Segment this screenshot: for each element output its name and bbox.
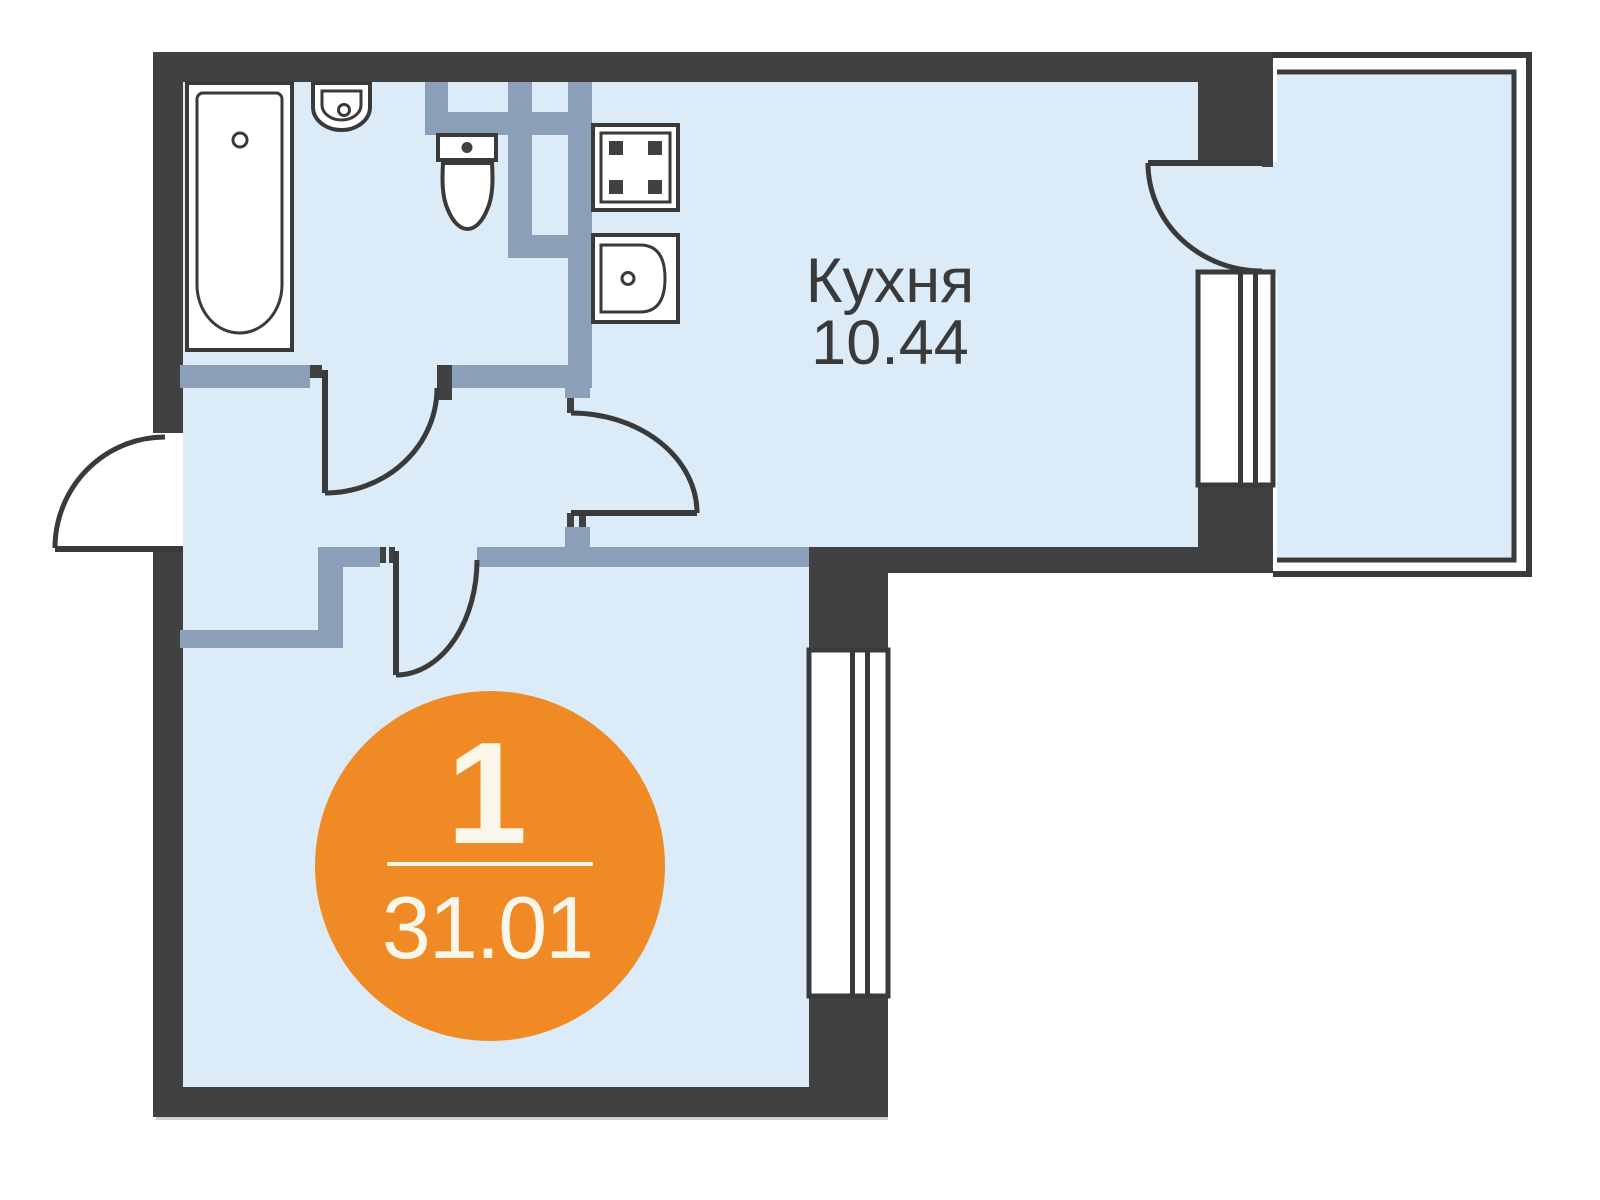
jamb-bathroom-left xyxy=(310,365,322,378)
stove-outline xyxy=(593,125,678,210)
unit-badge: 1 31.01 xyxy=(315,691,665,1041)
floor-plan-svg: Кухня 10.44 1 31.01 xyxy=(0,0,1600,1200)
wall-top xyxy=(153,52,1273,82)
wall-balcony-pillar-lower xyxy=(1198,485,1273,573)
partition-duct-d xyxy=(508,235,592,258)
partition-hall-bottom xyxy=(180,630,343,648)
wall-balcony-pillar-upper xyxy=(1198,52,1273,162)
wall-bottom xyxy=(153,1087,888,1117)
washbasin-icon xyxy=(313,83,370,130)
unit-badge-area: 31.01 xyxy=(382,878,592,977)
partition-duct-c xyxy=(508,82,532,258)
partition-bathroom-bottom-right xyxy=(452,365,568,388)
partition-duct-b xyxy=(425,112,568,135)
partition-kitchen-door-bottom xyxy=(565,527,590,547)
stove-burner-tr xyxy=(648,141,662,155)
jamb-living-left-a xyxy=(380,547,386,563)
unit-badge-rooms: 1 xyxy=(447,712,528,874)
kitchen-label: Кухня xyxy=(806,246,975,316)
stove-icon xyxy=(593,125,678,210)
partition-bathroom-bottom-left xyxy=(180,365,310,388)
jamb-balcony-door xyxy=(1262,158,1273,167)
stove-burner-br xyxy=(648,180,662,194)
partition-kitchen-door-top xyxy=(565,388,590,398)
wall-left-lower xyxy=(153,552,183,1117)
jamb-entrance xyxy=(167,552,182,572)
labels: Кухня 10.44 xyxy=(806,246,975,378)
kitchen-area-label: 10.44 xyxy=(811,308,969,378)
wall-left-upper xyxy=(153,52,183,433)
living-room-window xyxy=(809,650,888,996)
partition-living-top-right xyxy=(477,547,809,567)
toilet-button xyxy=(462,142,473,153)
floor-balcony xyxy=(1277,75,1512,557)
kitchen-window xyxy=(1198,272,1273,485)
floor-plan: Кухня 10.44 1 31.01 xyxy=(0,0,1600,1200)
stove-burner-tl xyxy=(609,141,623,155)
bathtub-icon xyxy=(187,83,292,350)
wall-living-right-lower xyxy=(809,998,888,1117)
kitchen-sink-icon xyxy=(593,235,678,322)
stove-burner-bl xyxy=(609,180,623,194)
entrance-door-arc xyxy=(55,437,165,548)
